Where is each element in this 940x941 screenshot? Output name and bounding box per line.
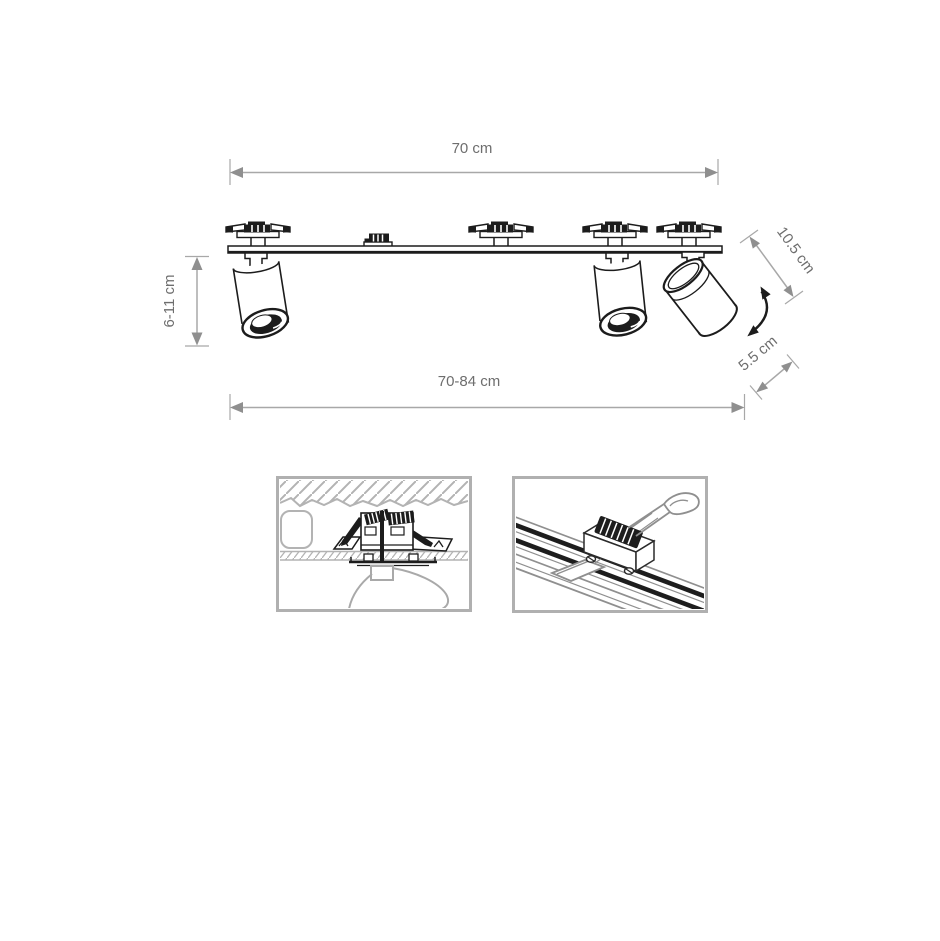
dimension-left-height: 6-11 cm	[161, 257, 209, 347]
wiring-connector	[364, 234, 392, 248]
fixture-drawing	[226, 222, 742, 344]
dimension-spot-offset: 5.5 cm	[735, 333, 799, 400]
arrow-left-icon	[230, 167, 243, 178]
recess-housing-outline	[281, 511, 312, 548]
arrow-right-icon	[732, 402, 745, 413]
dimension-bottom-width: 70-84 cm	[230, 373, 745, 420]
spotlight-left	[231, 261, 292, 343]
inset-recessed-mount-detail	[278, 478, 471, 612]
dimension-label-left-height: 6-11 cm	[161, 274, 178, 327]
arrow-left-icon	[230, 402, 243, 413]
spring-clip-bracket-4	[657, 222, 721, 247]
arrow-down-right-icon	[784, 285, 794, 297]
spotlight-middle	[592, 260, 650, 340]
dimension-top-width: 70 cm	[230, 140, 718, 185]
arrow-right-icon	[705, 167, 718, 178]
dimension-line	[754, 242, 789, 290]
dimension-label-top-width: 70 cm	[452, 140, 493, 157]
mounting-bar	[228, 246, 722, 253]
spring-clip-bracket-3	[583, 222, 647, 247]
arrow-down-icon	[192, 333, 203, 346]
fixture-dimension-drawing: 70 cm 6-11 cm 70-84 cm 10.5 cm 5.5 cm	[0, 0, 940, 941]
ceiling-board-hatch	[280, 552, 468, 561]
arrow-up-icon	[192, 257, 203, 270]
rotation-arrow-icon	[747, 287, 770, 337]
spring-clip-bracket-2	[469, 222, 533, 247]
spring-clip-bracket-1	[226, 222, 290, 247]
spotlight-right-swivelled	[659, 253, 743, 342]
dimension-label-spot-offset: 5.5 cm	[735, 333, 780, 375]
dimension-label-bottom-width: 70-84 cm	[438, 373, 501, 390]
arrow-up-left-icon	[750, 237, 761, 249]
dimension-spot-length: 10.5 cm	[740, 224, 818, 304]
dimension-label-spot-length: 10.5 cm	[773, 224, 818, 277]
inset-track-mount-detail	[510, 478, 712, 643]
